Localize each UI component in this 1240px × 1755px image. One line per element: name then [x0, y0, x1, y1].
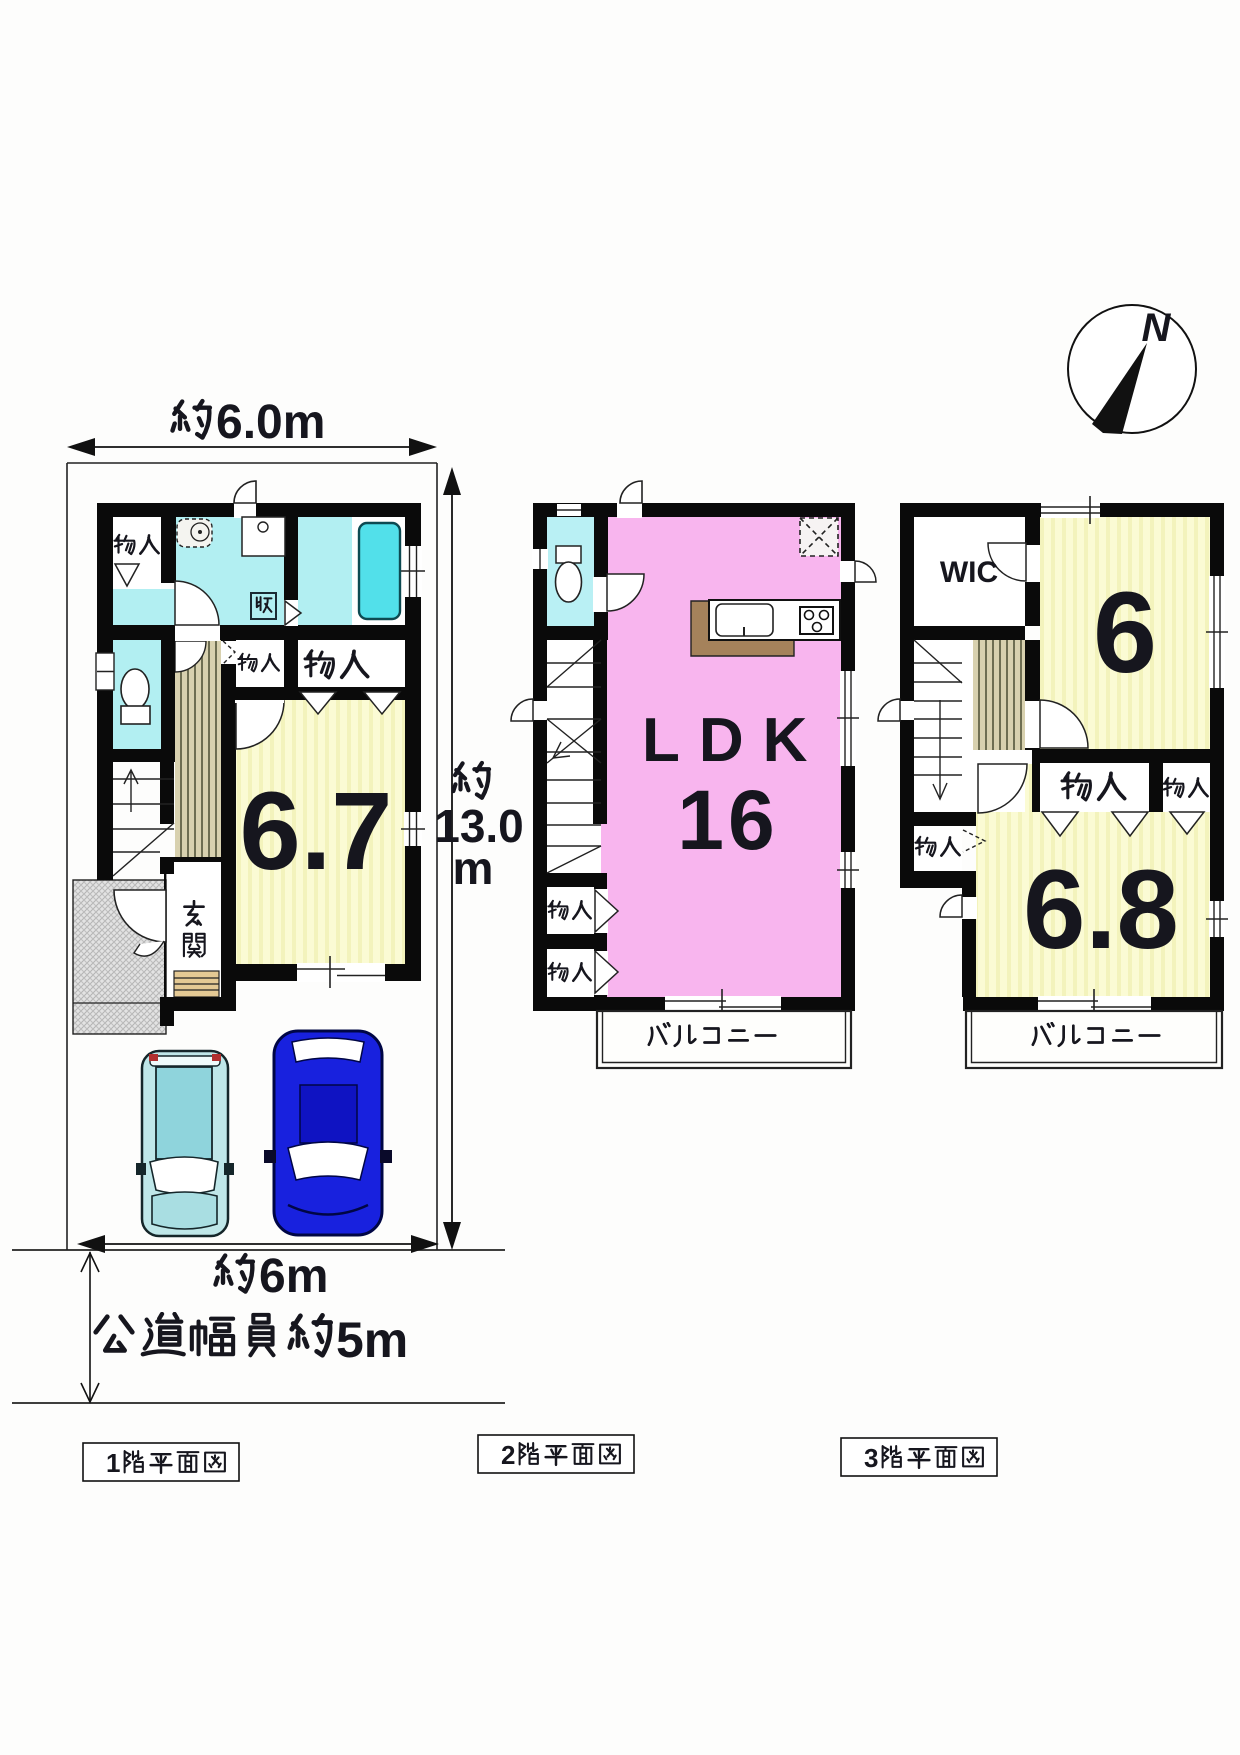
svg-text:6.8: 6.8 [1023, 847, 1179, 972]
svg-text:6: 6 [1093, 569, 1157, 697]
svg-text:6.0m: 6.0m [216, 396, 325, 449]
svg-text:16: 16 [677, 773, 778, 867]
svg-text:m: m [453, 842, 494, 894]
svg-text:6.7: 6.7 [240, 770, 393, 893]
svg-text:WIC: WIC [940, 556, 998, 589]
svg-text:N: N [1142, 306, 1172, 350]
svg-text:6m: 6m [259, 1250, 328, 1303]
svg-text:1: 1 [106, 1448, 120, 1478]
svg-text:3: 3 [864, 1443, 878, 1473]
svg-text:2: 2 [501, 1440, 515, 1470]
svg-text:LDK: LDK [642, 706, 826, 775]
svg-text:5m: 5m [336, 1312, 408, 1368]
